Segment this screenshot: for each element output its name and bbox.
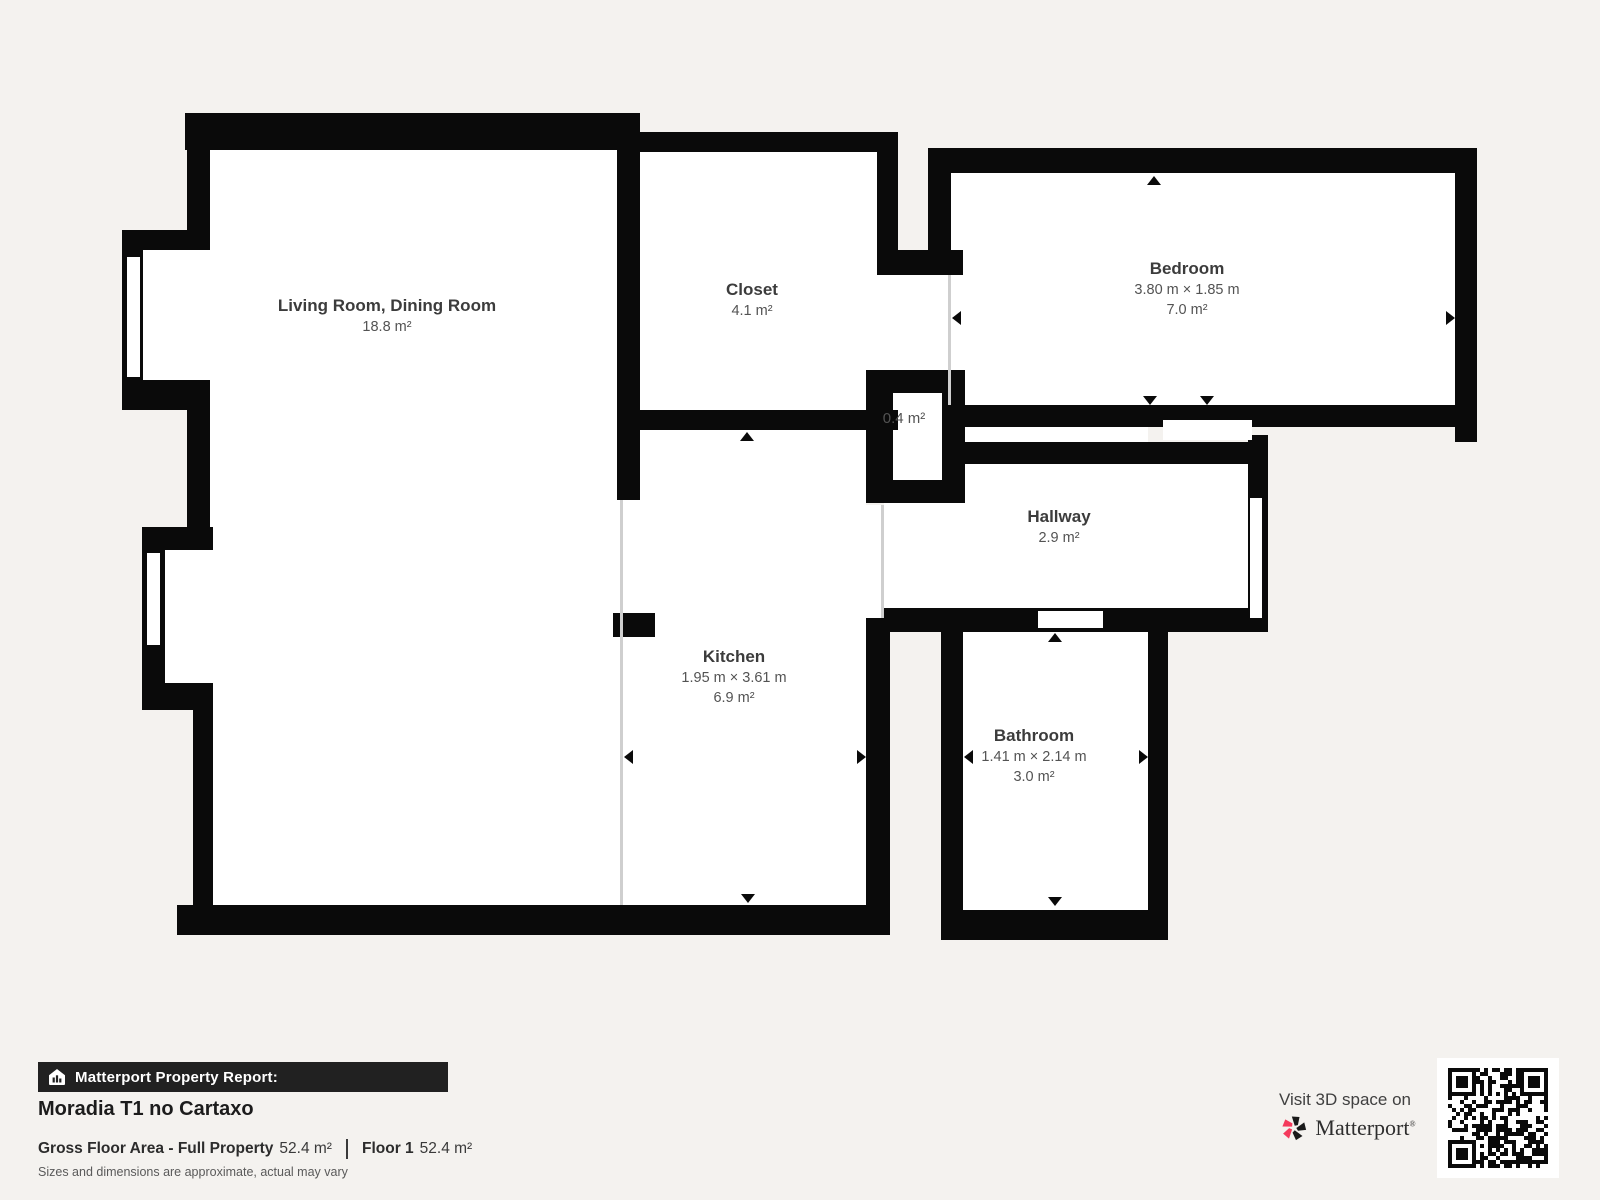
wall xyxy=(942,393,965,480)
dimension-arrow-up-icon xyxy=(740,432,754,441)
dimension-arrow-down-icon xyxy=(1143,396,1157,405)
area-stats: Gross Floor Area - Full Property 52.4 m²… xyxy=(38,1139,472,1159)
room-name: Hallway xyxy=(1027,506,1090,529)
stat-value: 52.4 m² xyxy=(279,1140,332,1158)
room-dims: 3.80 m × 1.85 m xyxy=(1134,281,1239,301)
report-header-bar: Matterport Property Report: xyxy=(38,1062,448,1092)
stat-label: Gross Floor Area - Full Property xyxy=(38,1140,273,1158)
dimension-arrow-left-icon xyxy=(952,311,961,325)
dimension-arrow-right-icon xyxy=(857,750,866,764)
wall xyxy=(193,683,213,913)
room-area: 3.0 m² xyxy=(981,767,1086,787)
wall xyxy=(928,148,1477,173)
house-chart-icon xyxy=(48,1068,66,1086)
door-arrow-down-icon xyxy=(1200,396,1214,405)
wall xyxy=(122,230,210,250)
dimension-arrow-down-icon xyxy=(741,894,755,903)
room-label-closet: Closet 4.1 m² xyxy=(726,279,778,322)
stat-label: Floor 1 xyxy=(362,1140,414,1158)
wall xyxy=(866,480,965,503)
wall xyxy=(866,618,890,935)
wall xyxy=(187,380,210,527)
wall xyxy=(1148,632,1168,940)
wall xyxy=(1455,148,1477,442)
room-name: Living Room, Dining Room xyxy=(278,295,496,318)
room-label-hallway: Hallway 2.9 m² xyxy=(1027,506,1090,549)
property-title: Moradia T1 no Cartaxo xyxy=(38,1098,254,1121)
dimension-arrow-right-icon xyxy=(1446,311,1455,325)
room-floor-living xyxy=(210,150,620,905)
dimension-arrow-left-icon xyxy=(964,750,973,764)
wall xyxy=(942,442,1268,464)
wall xyxy=(866,393,893,480)
qr-pattern xyxy=(1448,1068,1548,1168)
room-floor-living-bay1 xyxy=(143,250,210,380)
room-name: Closet xyxy=(726,279,778,302)
room-label-bedroom: Bedroom 3.80 m × 1.85 m 7.0 m² xyxy=(1134,258,1239,320)
room-floor-living-bay2 xyxy=(165,550,213,683)
room-dims: 1.41 m × 2.14 m xyxy=(981,748,1086,768)
door-opening-hallway xyxy=(1163,420,1252,440)
room-dims: 1.95 m × 3.61 m xyxy=(681,669,786,689)
room-floor-closet-nook xyxy=(877,275,948,372)
window xyxy=(147,553,160,645)
matterport-wordmark: Matterport® xyxy=(1315,1115,1415,1141)
dimension-arrow-up-icon xyxy=(1048,633,1062,642)
wall xyxy=(941,910,1168,940)
dimension-arrow-down-icon xyxy=(1048,897,1062,906)
room-label-storage: 0.4 m² xyxy=(883,409,926,429)
room-area: 0.4 m² xyxy=(883,409,926,429)
door-opening-bathroom xyxy=(1038,611,1103,628)
wall xyxy=(185,113,640,150)
open-boundary-line xyxy=(881,505,884,618)
dimension-arrow-right-icon xyxy=(1139,750,1148,764)
room-name: Bathroom xyxy=(981,725,1086,748)
room-floor-storage xyxy=(893,393,942,480)
room-name: Bedroom xyxy=(1134,258,1239,281)
wall xyxy=(928,148,951,275)
wall xyxy=(617,113,640,500)
matterport-pinwheel-icon xyxy=(1280,1114,1308,1142)
room-area: 6.9 m² xyxy=(681,688,786,708)
wall-gap-sliver xyxy=(942,427,1148,442)
stat-value: 52.4 m² xyxy=(420,1140,473,1158)
open-boundary-line xyxy=(948,275,951,405)
dimension-arrow-left-icon xyxy=(624,750,633,764)
disclaimer-text: Sizes and dimensions are approximate, ac… xyxy=(38,1165,348,1179)
report-header-label: Matterport Property Report: xyxy=(75,1069,278,1086)
qr-code xyxy=(1437,1058,1559,1178)
room-floor-hallway-upper xyxy=(965,464,1248,503)
floor-plan-page: Living Room, Dining Room 18.8 m² Closet … xyxy=(0,0,1600,1200)
room-area: 4.1 m² xyxy=(726,302,778,322)
room-area: 7.0 m² xyxy=(1134,300,1239,320)
wall xyxy=(142,527,213,550)
stat-divider xyxy=(346,1139,348,1159)
room-label-bathroom: Bathroom 1.41 m × 2.14 m 3.0 m² xyxy=(981,725,1086,787)
wall xyxy=(177,905,890,935)
matterport-logo: Matterport® xyxy=(1258,1114,1438,1142)
dimension-arrow-up-icon xyxy=(1147,176,1161,185)
room-label-kitchen: Kitchen 1.95 m × 3.61 m 6.9 m² xyxy=(681,646,786,708)
visit-3d-text: Visit 3D space on xyxy=(1245,1090,1445,1110)
wall xyxy=(617,132,898,152)
room-label-living: Living Room, Dining Room 18.8 m² xyxy=(278,295,496,338)
window xyxy=(127,257,140,377)
entry-door-opening xyxy=(1250,498,1262,618)
room-area: 18.8 m² xyxy=(278,318,496,338)
wall xyxy=(617,410,898,430)
room-name: Kitchen xyxy=(681,646,786,669)
wall xyxy=(941,632,963,940)
open-boundary-line xyxy=(620,500,623,905)
room-area: 2.9 m² xyxy=(1027,529,1090,549)
